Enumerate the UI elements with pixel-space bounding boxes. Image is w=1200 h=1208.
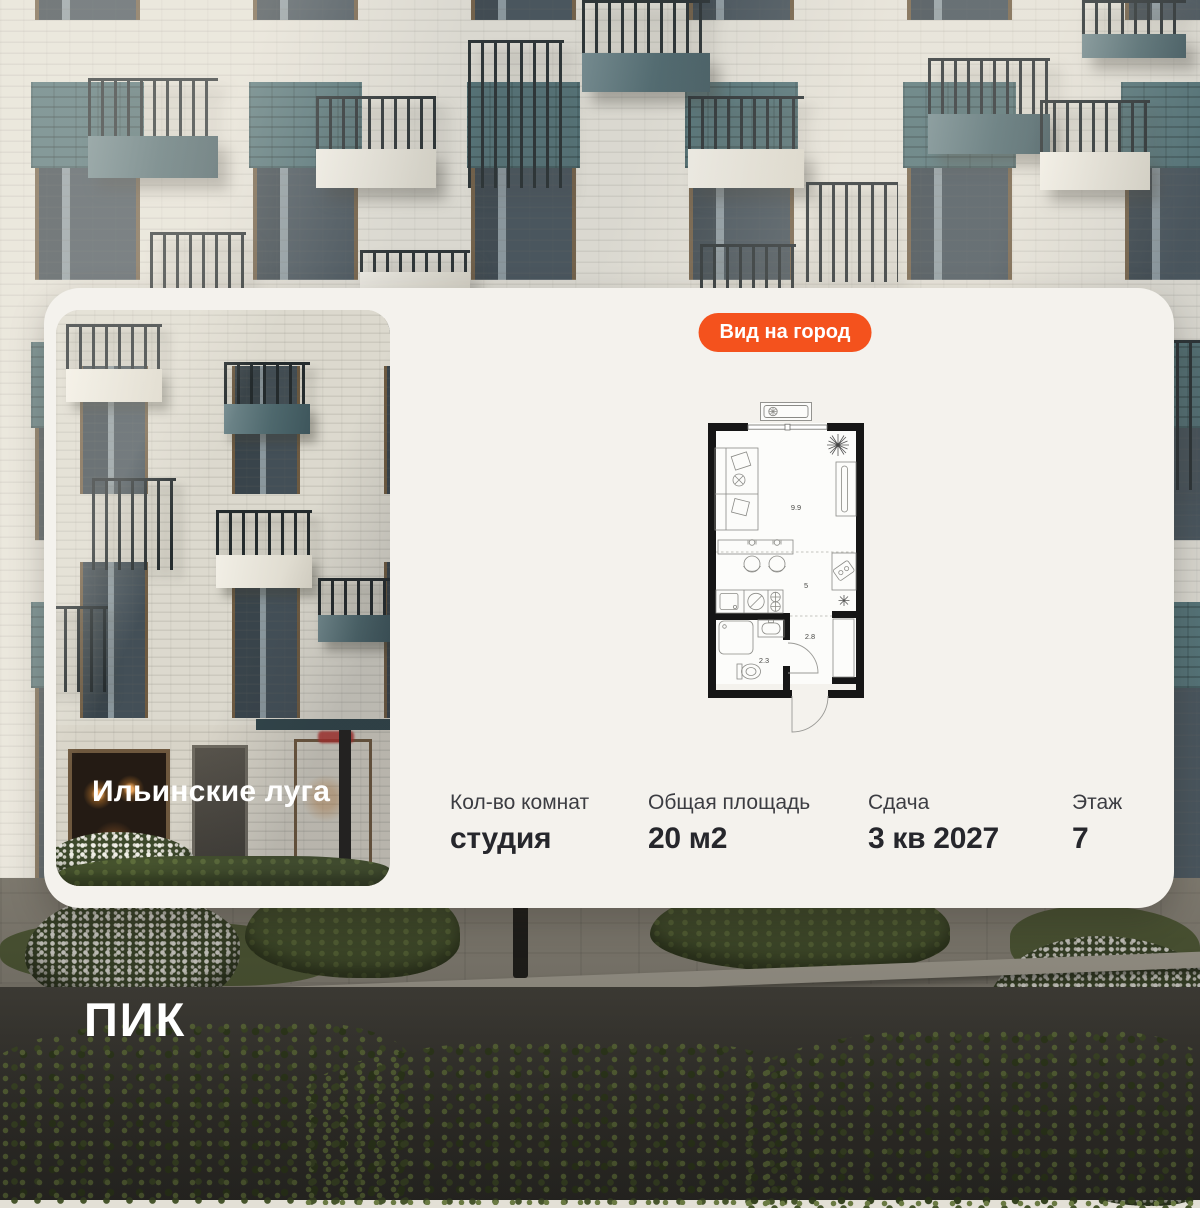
stat-value: 20 м2	[648, 823, 810, 855]
balcony-decoration	[224, 362, 310, 434]
stat-value: студия	[450, 823, 589, 855]
stat-value: 7	[1072, 823, 1122, 855]
snowflake-icon	[839, 595, 850, 606]
bathroom-area-label: 2.3	[759, 656, 769, 665]
stat-floor: Этаж 7	[1072, 791, 1122, 855]
balcony-decoration	[92, 478, 176, 570]
balcony-decoration	[1040, 100, 1150, 190]
view-badge: Вид на город	[699, 313, 872, 352]
listing-card[interactable]: Ильинские луга Вид на город	[44, 288, 1174, 908]
stat-value: 3 кв 2027	[868, 823, 999, 855]
building-photo: Ильинские луга	[56, 310, 390, 886]
balcony-decoration	[318, 578, 390, 642]
hallway-area-label: 2.8	[805, 632, 815, 641]
floorplan: 9.9 5 2.8 2.3	[706, 394, 874, 734]
balcony-decoration	[316, 96, 436, 188]
stat-label: Сдача	[868, 791, 999, 814]
front-shrub	[740, 1028, 1200, 1208]
balcony-decoration	[1082, 0, 1186, 58]
balcony-decoration	[806, 182, 898, 282]
chandelier-icon	[827, 434, 849, 456]
balcony-decoration	[688, 96, 804, 188]
balcony-decoration	[88, 78, 218, 178]
stat-rooms: Кол-во комнат студия	[450, 791, 589, 855]
stat-label: Кол-во комнат	[450, 791, 589, 814]
canopy	[256, 719, 390, 730]
stat-total-area: Общая площадь 20 м2	[648, 791, 810, 855]
stat-delivery: Сдача 3 кв 2027	[868, 791, 999, 855]
balcony-decoration	[216, 510, 312, 588]
pik-logo: ПИК	[84, 992, 186, 1047]
front-shrub	[300, 1040, 800, 1205]
project-name-label: Ильинские луга	[92, 775, 330, 809]
stat-label: Общая площадь	[648, 791, 810, 814]
living-area-label: 9.9	[791, 503, 801, 512]
plan-entry-opening	[792, 690, 828, 698]
balcony-decoration	[700, 244, 796, 288]
balcony-decoration	[56, 606, 108, 692]
photo-shrub	[56, 856, 390, 886]
balcony-decoration	[582, 0, 710, 92]
plan-floor	[716, 431, 856, 684]
stat-label: Этаж	[1072, 791, 1122, 814]
kitchen-area-label: 5	[804, 581, 808, 590]
plan-balcony-icon	[761, 403, 812, 421]
balcony-decoration	[150, 232, 246, 288]
balcony-decoration	[66, 324, 162, 402]
balcony-decoration	[928, 58, 1050, 154]
plan-window-icon	[748, 423, 827, 431]
balcony-decoration	[360, 250, 470, 288]
balcony-decoration	[468, 40, 564, 188]
